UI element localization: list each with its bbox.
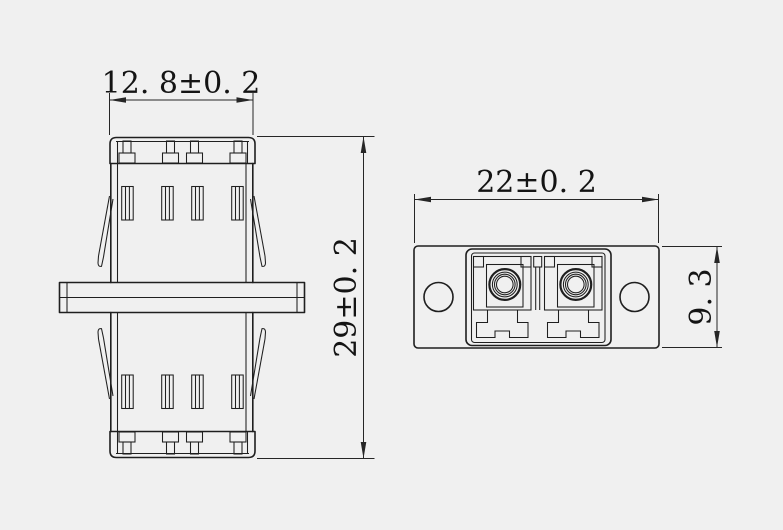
mounting-hole-right	[620, 283, 649, 312]
body-slot	[162, 187, 174, 221]
body-slot	[122, 187, 134, 221]
body-slot	[192, 187, 204, 221]
technical-drawing: 12. 8±0. 2 29±0. 2	[0, 0, 783, 530]
dimension-front-width: 22±0. 2	[415, 165, 659, 243]
drawing-canvas: 12. 8±0. 2 29±0. 2	[0, 0, 783, 530]
side-view: 12. 8±0. 2 29±0. 2	[60, 66, 375, 459]
dimension-side-width: 12. 8±0. 2	[102, 66, 261, 135]
lc-port	[474, 257, 532, 338]
flange	[60, 283, 305, 313]
front-width-dimension-label: 22±0. 2	[476, 165, 597, 200]
side-width-dimension-label: 12. 8±0. 2	[102, 66, 261, 101]
side-view-top-half	[98, 138, 266, 283]
cap-hook	[163, 141, 179, 163]
dimension-front-height: 9. 3	[662, 247, 722, 348]
duplex-housing-outer	[466, 249, 611, 346]
face-plate	[414, 246, 659, 348]
side-height-dimension-label: 29±0. 2	[329, 237, 364, 358]
front-view: 22±0. 2 9. 3	[414, 165, 722, 348]
mounting-hole-left	[424, 283, 453, 312]
front-height-dimension-label: 9. 3	[684, 268, 719, 325]
lc-port-right	[545, 257, 603, 338]
port-divider	[534, 257, 542, 311]
body-slot	[232, 187, 244, 221]
cap-hook	[119, 141, 135, 163]
side-view-bottom-half	[98, 313, 266, 458]
cap-hook	[187, 141, 203, 163]
cap-hook	[230, 141, 246, 163]
